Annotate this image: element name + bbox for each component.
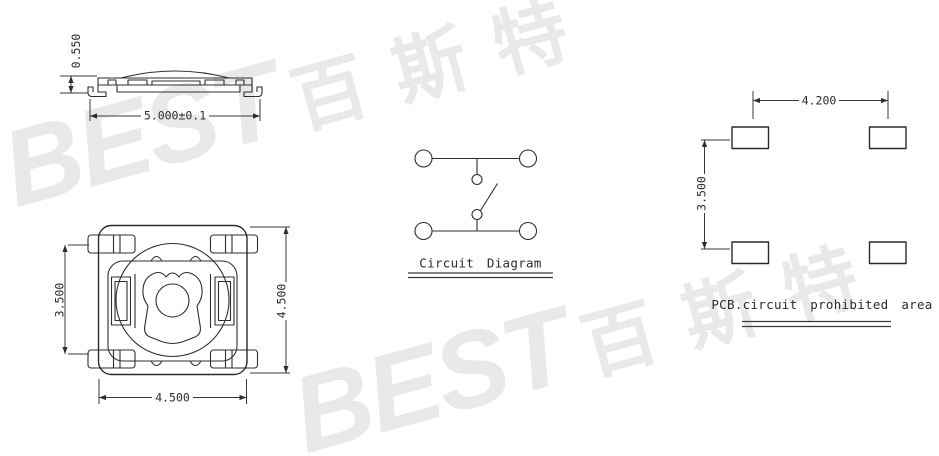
pcb-pitch-x-dim-text: 4.200	[802, 94, 837, 108]
watermark-cjk-char: 百	[575, 295, 666, 386]
corner-lead	[211, 350, 258, 368]
pcb-caption-text: PCB.circuit prohibited area	[711, 297, 932, 312]
drawing-canvas: BEST 百 斯 特 BEST 百 斯 特 0.550	[0, 0, 939, 456]
pcb-caption: PCB.circuit prohibited area	[711, 297, 932, 327]
watermark-latin-text: BEST	[282, 291, 581, 456]
terminal-circle	[415, 150, 432, 167]
right-lead-outline	[244, 85, 262, 97]
center-stem-circle	[156, 284, 189, 317]
side-width-dim-text: 5.000±0.1	[144, 109, 206, 123]
lid-detail	[108, 80, 116, 85]
top-view-width-dimension: 4.500	[99, 379, 247, 405]
side-view-height-dimension: 0.550	[60, 34, 97, 93]
top-view-width-dim-text: 4.500	[155, 391, 190, 405]
circuit-diagram-drawing	[415, 150, 537, 240]
corner-lead	[211, 235, 258, 253]
right-contact	[215, 277, 234, 325]
side-height-dim-text: 0.550	[69, 34, 83, 69]
corner-lead	[88, 235, 135, 253]
pcb-pads	[732, 127, 906, 264]
circuit-caption-text: Circuit Diagram	[419, 256, 541, 271]
watermark-cjk-char: 百	[285, 49, 376, 140]
switch-body-outline	[99, 226, 248, 375]
top-view-height-dimension: 4.500	[250, 227, 290, 373]
watermark-cjk-char: 斯	[385, 21, 476, 112]
side-view: 0.550 5.000±0.1	[50, 15, 280, 130]
circuit-diagram: Circuit Diagram	[395, 140, 570, 285]
circuit-diagram-caption: Circuit Diagram	[408, 256, 553, 278]
top-view-drawing	[88, 226, 258, 375]
pcb-pitch-y-dimension: 3.500	[695, 140, 731, 249]
left-contact-inner	[115, 282, 127, 321]
terminal-circle	[520, 150, 537, 167]
pcb-pad	[732, 242, 769, 264]
pcb-pad	[870, 242, 907, 264]
side-view-width-dimension: 5.000±0.1	[90, 99, 260, 123]
left-lead-outline	[88, 85, 106, 97]
caption-double-underline	[408, 273, 553, 278]
lid-detail	[236, 80, 244, 85]
watermark-cjk-char: 特	[485, 0, 576, 85]
top-view-pitch-dimension: 3.500	[53, 245, 90, 354]
terminal-circle	[415, 223, 432, 240]
pcb-layout: 4.200 3.500 PCB.circuit prohibited area	[685, 85, 939, 335]
pcb-pad	[870, 127, 907, 149]
top-view: 3.500 4.500 4.500	[40, 218, 300, 410]
pcb-pitch-y-dim-text: 3.500	[695, 176, 709, 211]
pcb-pitch-x-dimension: 4.200	[753, 91, 888, 119]
terminal-circle	[520, 223, 537, 240]
side-view-drawing	[88, 71, 262, 97]
switch-contact-top	[472, 175, 482, 185]
base-outline	[117, 85, 240, 92]
pcb-pad	[732, 127, 769, 149]
button-dome-outline	[121, 71, 229, 78]
lid-detail	[205, 80, 224, 85]
top-view-height-dim-text: 4.500	[275, 284, 289, 319]
switch-arm	[481, 184, 498, 211]
lead-detail-lines	[114, 235, 233, 368]
left-contact	[112, 277, 131, 325]
lid-detail	[152, 81, 200, 85]
lid-detail	[128, 80, 147, 85]
caption-double-underline	[742, 322, 891, 327]
top-view-pitch-dim-text: 3.500	[53, 283, 67, 318]
corner-lead	[88, 350, 135, 368]
stem-outline	[143, 273, 202, 344]
switch-contact-bottom	[472, 210, 482, 220]
